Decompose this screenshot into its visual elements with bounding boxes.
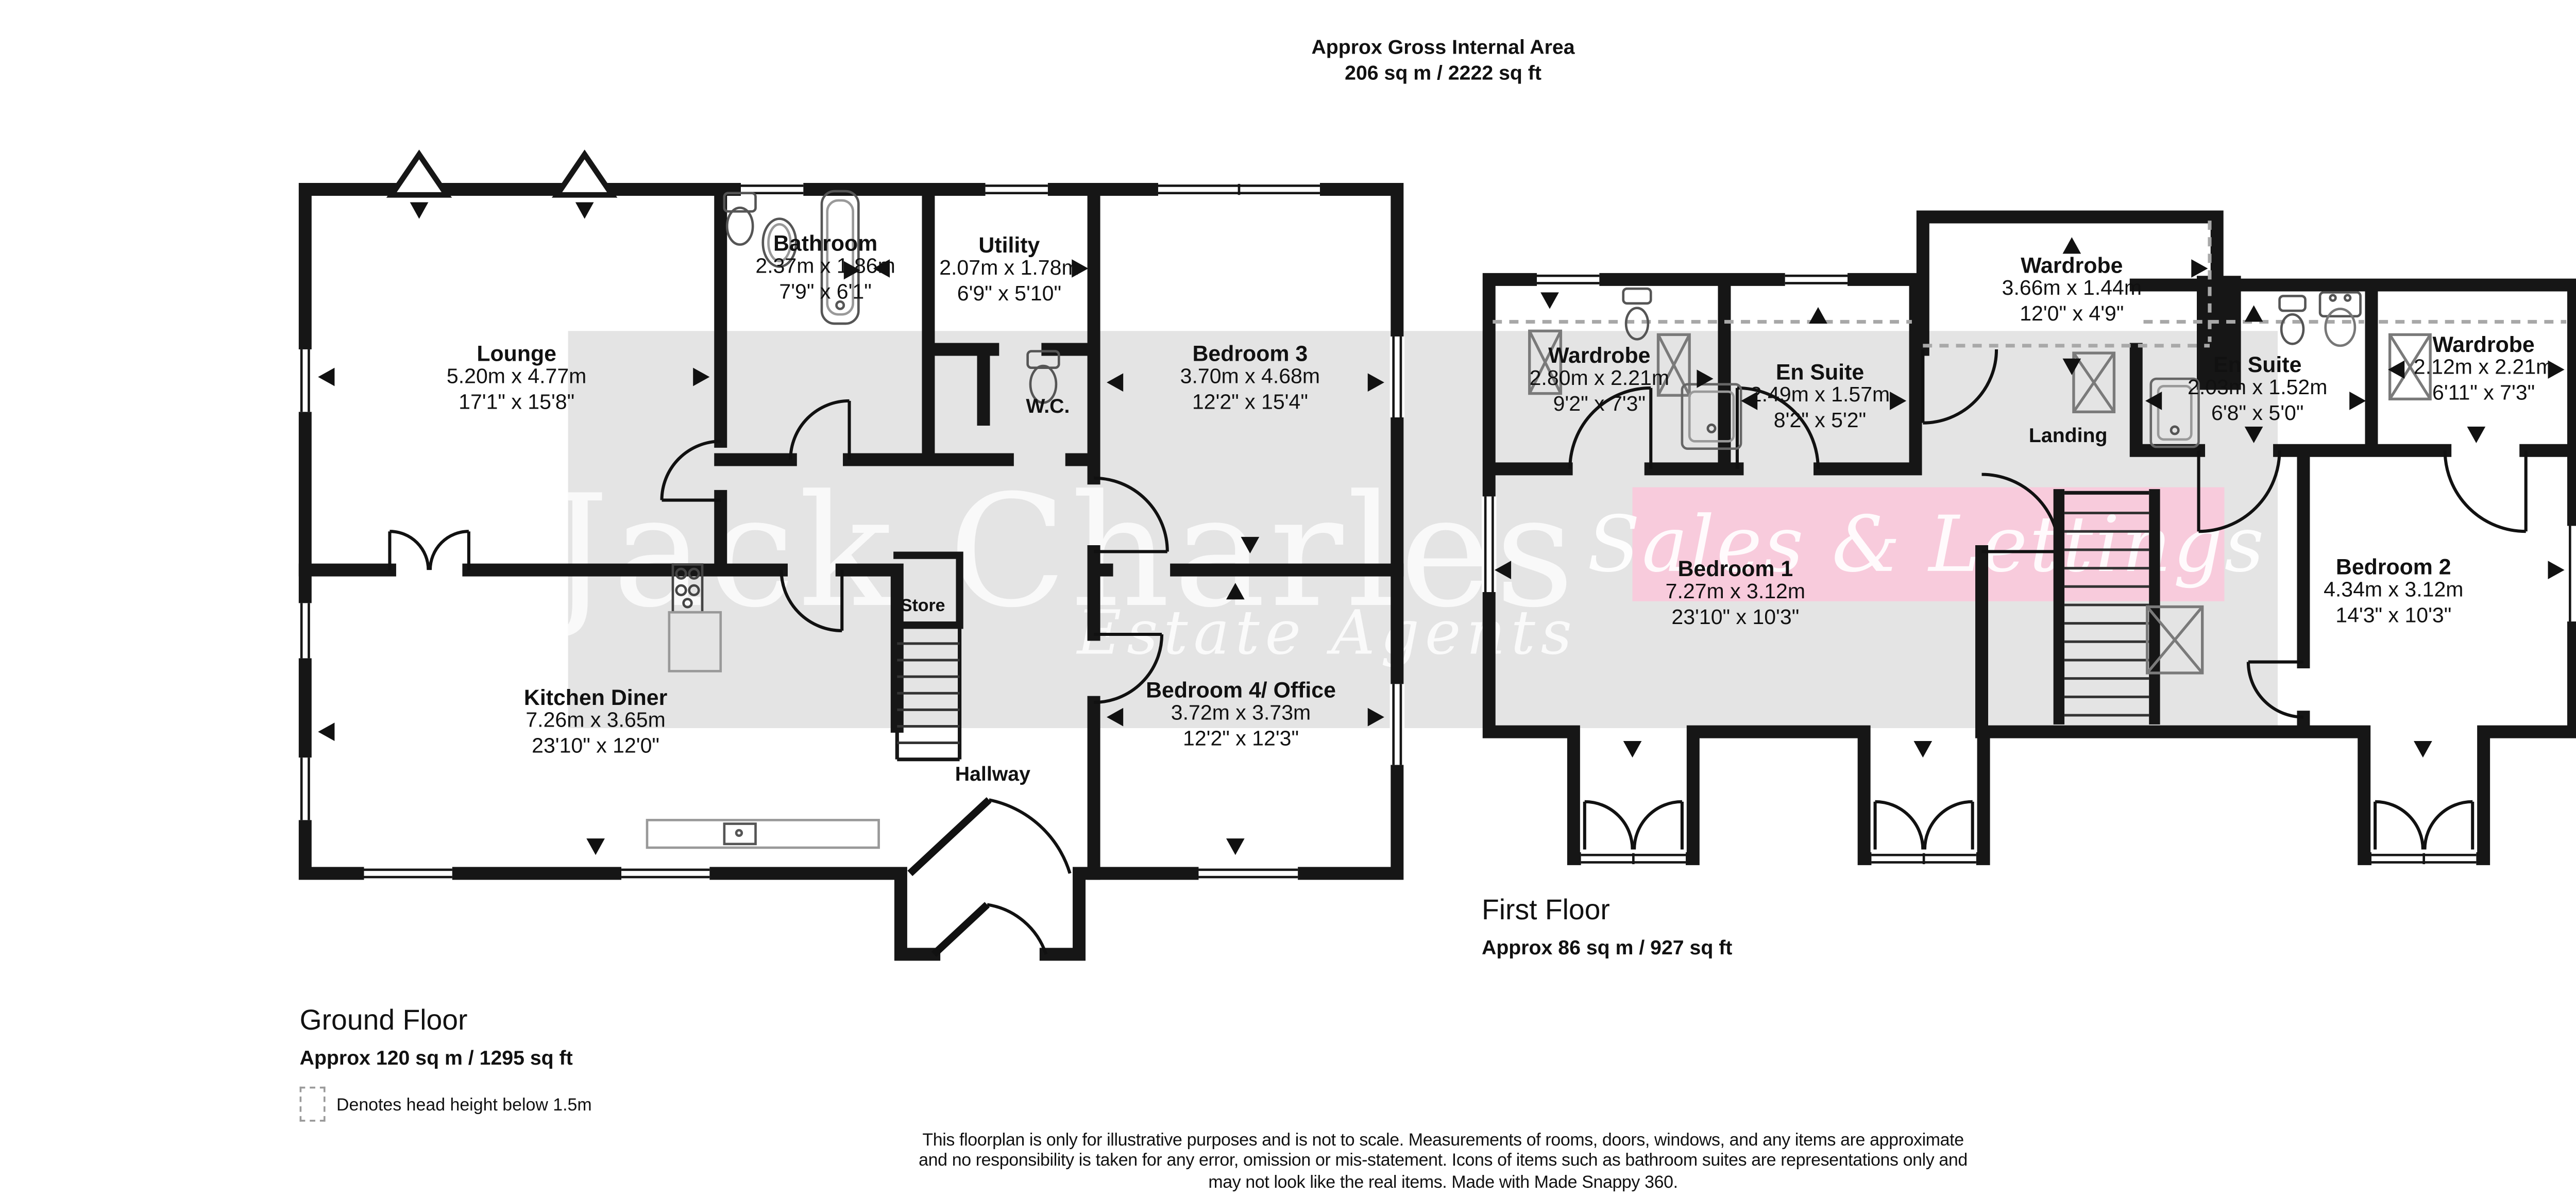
room-name: Kitchen Diner: [524, 685, 667, 711]
room-dim-imperial: 6'11" x 7'3": [2414, 382, 2553, 407]
room-name: En Suite: [1750, 359, 1890, 385]
room-dim-imperial: 6'8" x 5'0": [2188, 403, 2327, 428]
room-label-utility: Utility 2.07m x 1.78m 6'9" x 5'10": [939, 232, 1079, 308]
disclaimer: This floorplan is only for illustrative …: [919, 1131, 1968, 1193]
room-label-ensuite-right: En Suite 2.03m x 1.52m 6'8" x 5'0": [2188, 352, 2327, 428]
room-dim-metric: 2.80m x 2.21m: [1530, 368, 1669, 393]
room-dim-metric: 3.72m x 3.73m: [1146, 703, 1336, 728]
ensuite-left-shower-icon: [1682, 384, 1741, 449]
room-name: En Suite: [2188, 352, 2327, 378]
room-dim-imperial: 12'2" x 15'4": [1180, 392, 1320, 416]
disclaimer-line-1: This floorplan is only for illustrative …: [919, 1131, 1968, 1152]
ground-floor-title: Ground Floor: [300, 1006, 573, 1039]
room-name: Bedroom 3: [1180, 341, 1320, 367]
room-label-landing: Landing: [2029, 426, 2108, 449]
room-label-bedroom4: Bedroom 4/ Office 3.72m x 3.73m 12'2" x …: [1146, 677, 1336, 753]
room-dim-imperial: 12'0" x 4'9": [2002, 304, 2142, 328]
first-floor-title-block: First Floor Approx 86 sq m / 927 sq ft: [1482, 896, 1732, 960]
kitchen-counter: [669, 612, 721, 671]
ensuite-right-sink-icon: [2320, 292, 2361, 345]
room-dim-metric: 3.70m x 4.68m: [1180, 367, 1320, 392]
room-label-kitchen-diner: Kitchen Diner 7.26m x 3.65m 23'10" x 12'…: [524, 685, 667, 761]
room-label-bedroom1: Bedroom 1 7.27m x 3.12m 23'10" x 10'3": [1666, 556, 1805, 632]
room-dim-imperial: 9'2" x 7'3": [1530, 394, 1669, 418]
ground-floor-area: Approx 120 sq m / 1295 sq ft: [300, 1048, 573, 1070]
room-label-bedroom3: Bedroom 3 3.70m x 4.68m 12'2" x 15'4": [1180, 341, 1320, 416]
room-name: Bedroom 4/ Office: [1146, 677, 1336, 703]
room-label-ensuite-left: En Suite 2.49m x 1.57m 8'2" x 5'2": [1750, 359, 1890, 435]
floorplan-page: Jack Charles Estate Agents Sales & Letti…: [0, 0, 2576, 1195]
wc-toilet-icon: [1028, 351, 1059, 403]
room-name: Bathroom: [755, 230, 895, 257]
gross-area-title: Approx Gross Internal Area: [1311, 37, 1574, 62]
head-height-legend-label: Denotes head height below 1.5m: [336, 1096, 592, 1116]
ground-floor-title-block: Ground Floor Approx 120 sq m / 1295 sq f…: [300, 1006, 573, 1070]
room-dim-metric: 2.12m x 2.21m: [2414, 358, 2553, 382]
bathroom-toilet-icon: [724, 193, 756, 245]
room-label-wardrobe-left: Wardrobe 2.80m x 2.21m 9'2" x 7'3": [1530, 343, 1669, 418]
kitchen-sink-icon: [724, 824, 756, 844]
head-height-legend-icon: [300, 1087, 326, 1122]
room-label-wardrobe-top: Wardrobe 3.66m x 1.44m 12'0" x 4'9": [2002, 253, 2142, 328]
ground-floor-stairs: [897, 627, 959, 760]
room-name: Wardrobe: [2002, 253, 2142, 279]
room-dim-metric: 7.27m x 3.12m: [1666, 582, 1805, 607]
room-label-bathroom: Bathroom 2.37m x 1.86m 7'9" x 6'1": [755, 230, 895, 306]
room-label-hallway: Hallway: [955, 764, 1030, 788]
room-dim-imperial: 6'9" x 5'10": [939, 283, 1079, 308]
room-dim-imperial: 23'10" x 10'3": [1666, 607, 1805, 632]
room-dim-imperial: 8'2" x 5'2": [1750, 410, 1890, 435]
room-dim-metric: 2.03m x 1.52m: [2188, 378, 2327, 402]
first-floor-area: Approx 86 sq m / 927 sq ft: [1482, 938, 1732, 960]
room-dim-metric: 2.07m x 1.78m: [939, 258, 1079, 283]
room-name: Bedroom 1: [1666, 556, 1805, 582]
room-dim-imperial: 23'10" x 12'0": [524, 736, 667, 761]
ensuite-left-toilet-icon: [1623, 289, 1651, 339]
page-title: Approx Gross Internal Area 206 sq m / 22…: [1311, 37, 1574, 88]
room-name: Wardrobe: [1530, 343, 1669, 369]
room-dim-metric: 7.26m x 3.65m: [524, 711, 667, 735]
first-floor-stairs: [2054, 489, 2160, 725]
first-floor-title: First Floor: [1482, 896, 1732, 929]
room-name: Store: [901, 597, 945, 617]
disclaimer-line-2: and no responsibility is taken for any e…: [919, 1152, 1968, 1173]
room-dim-imperial: 17'1" x 15'8": [447, 392, 586, 416]
room-label-wc: W.C.: [1026, 396, 1070, 420]
room-dim-metric: 3.66m x 1.44m: [2002, 279, 2142, 304]
room-dim-metric: 2.49m x 1.57m: [1750, 385, 1890, 410]
room-dim-imperial: 7'9" x 6'1": [755, 281, 895, 306]
room-name: Lounge: [447, 341, 586, 367]
disclaimer-line-3: may not look like the real items. Made w…: [919, 1173, 1968, 1194]
room-name: Utility: [939, 232, 1079, 259]
kitchen-island: [647, 820, 879, 848]
room-dim-metric: 4.34m x 3.12m: [2324, 580, 2463, 605]
room-name: W.C.: [1026, 396, 1070, 420]
room-label-wardrobe-right: Wardrobe 2.12m x 2.21m 6'11" x 7'3": [2414, 332, 2553, 408]
room-name: Landing: [2029, 426, 2108, 449]
room-dim-metric: 2.37m x 1.86m: [755, 257, 895, 281]
room-dim-imperial: 14'3" x 10'3": [2324, 605, 2463, 630]
gross-area-value: 206 sq m / 2222 sq ft: [1311, 62, 1574, 88]
room-label-lounge: Lounge 5.20m x 4.77m 17'1" x 15'8": [447, 341, 586, 416]
room-dim-imperial: 12'2" x 12'3": [1146, 728, 1336, 753]
room-name: Bedroom 2: [2324, 554, 2463, 580]
room-name: Wardrobe: [2414, 332, 2553, 358]
room-dim-metric: 5.20m x 4.77m: [447, 367, 586, 392]
room-label-store: Store: [901, 597, 945, 617]
room-name: Hallway: [955, 764, 1030, 788]
room-label-bedroom2: Bedroom 2 4.34m x 3.12m 14'3" x 10'3": [2324, 554, 2463, 630]
